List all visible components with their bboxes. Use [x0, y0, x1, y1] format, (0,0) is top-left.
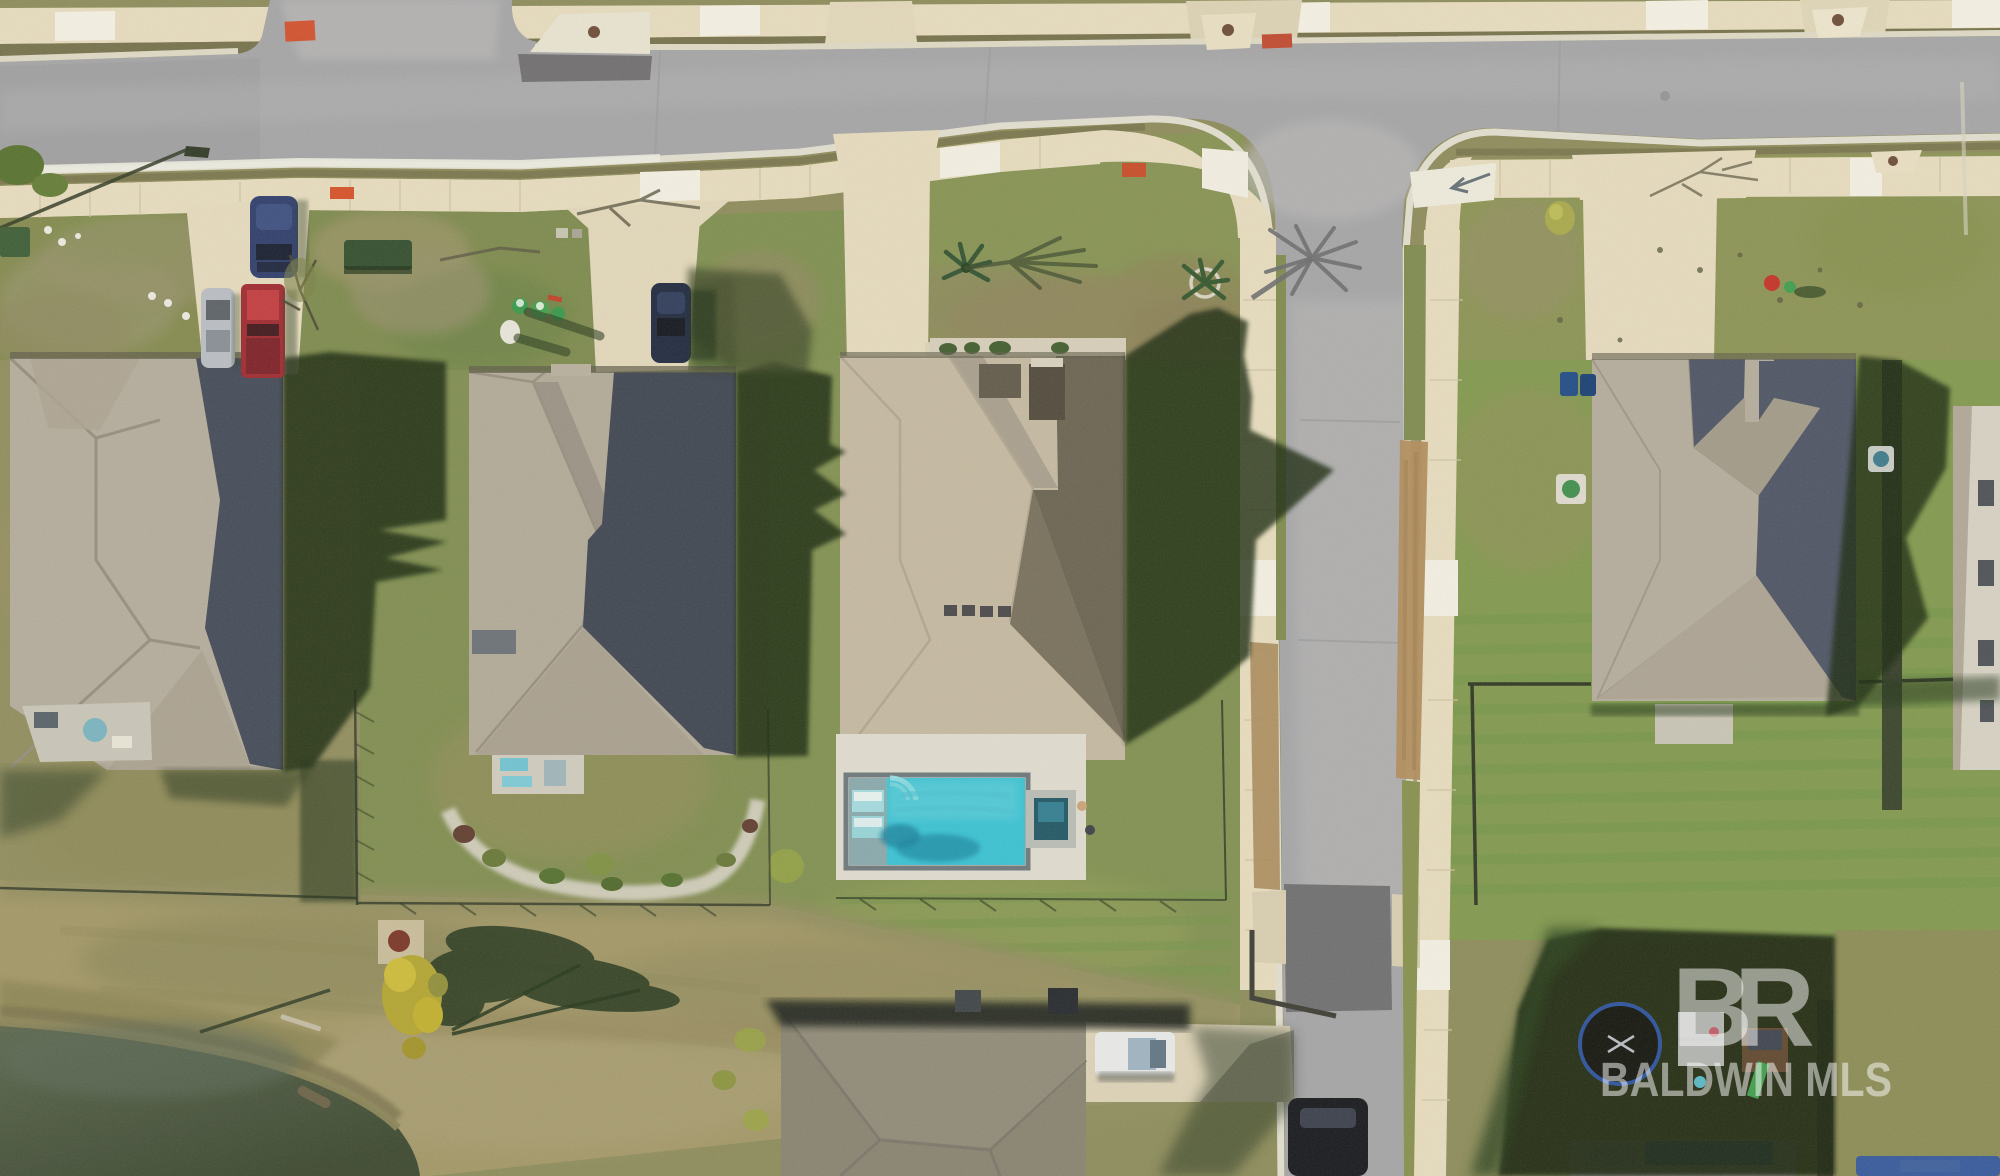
svg-text:BALDWIN MLS: BALDWIN MLS: [1600, 1054, 1892, 1107]
svg-text:R: R: [1734, 945, 1815, 1070]
